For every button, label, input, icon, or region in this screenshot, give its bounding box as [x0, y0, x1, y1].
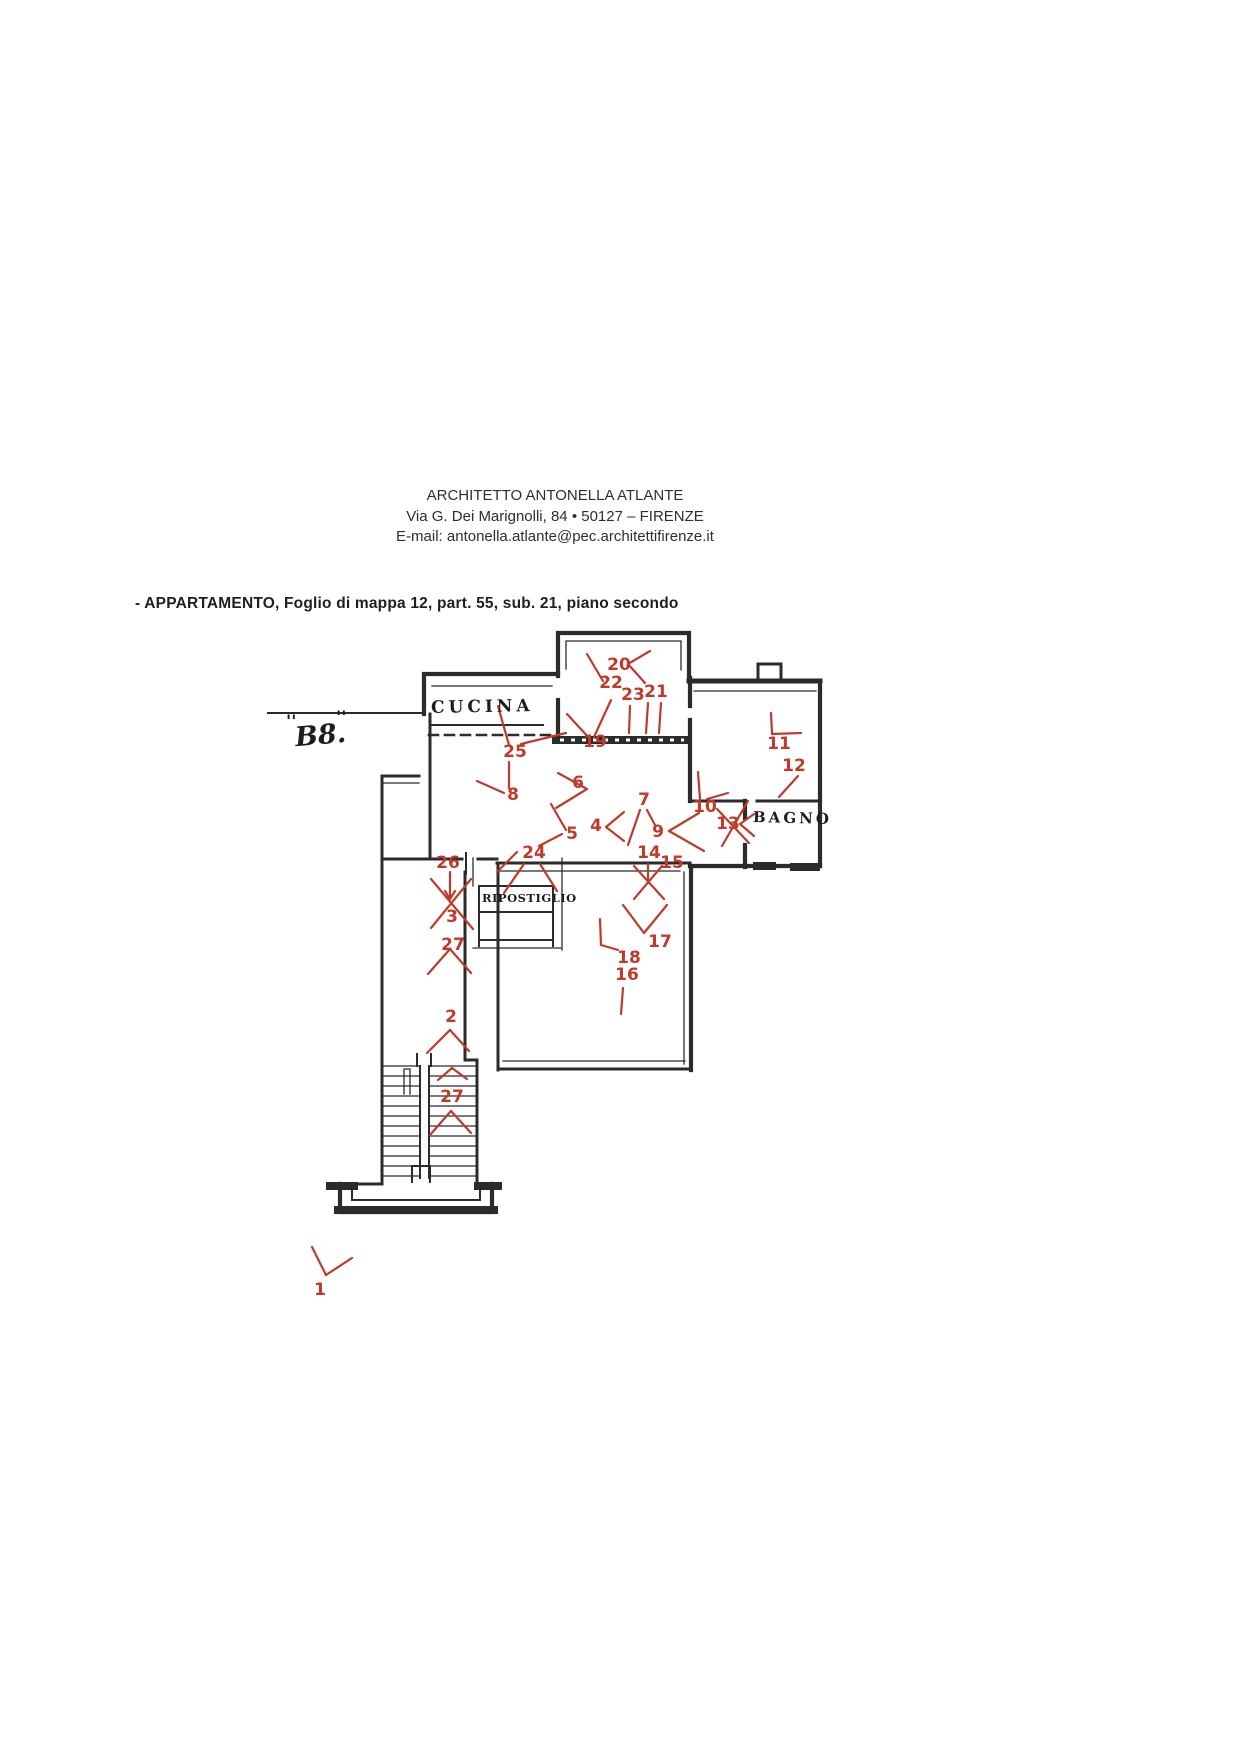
photo-marker-number: 13: [716, 814, 740, 834]
photo-marker-number: 7: [638, 790, 650, 810]
photo-marker-number: 27: [441, 935, 465, 955]
photo-markers-layer: 1232726242586547910131415161718192022232…: [312, 651, 806, 1300]
marker-arrow-line: [606, 812, 624, 827]
photo-marker-number: 1: [314, 1280, 326, 1300]
walls-layer: [268, 633, 820, 1212]
photo-marker-number: 21: [644, 682, 668, 702]
photo-marker-number: 5: [566, 824, 578, 844]
photo-marker-number: 9: [652, 822, 664, 842]
marker-arrow-line: [628, 810, 640, 845]
photo-marker-number: 20: [607, 655, 631, 675]
marker-arrow-line: [623, 905, 644, 933]
marker-arrow-line: [621, 988, 623, 1014]
photo-marker-number: 24: [522, 843, 546, 863]
marker-arrow-line: [698, 772, 700, 799]
marker-arrow-line: [504, 864, 524, 893]
photo-marker-number: 14: [637, 843, 661, 863]
marker-arrow-line: [771, 713, 772, 733]
marker-arrow-line: [427, 1030, 450, 1053]
marker-arrow-line: [438, 1068, 452, 1080]
photo-marker-number: 2: [445, 1007, 457, 1027]
marker-arrow-line: [629, 706, 630, 733]
room-label-ripostiglio: RIPOSTIGLIO: [482, 891, 577, 905]
marker-arrow-line: [601, 945, 618, 950]
marker-arrow-line: [628, 651, 650, 664]
marker-arrow-line: [312, 1247, 326, 1275]
photo-marker-number: 25: [503, 742, 527, 762]
photo-marker-number: 17: [648, 932, 672, 952]
photo-marker-number: 16: [615, 965, 639, 985]
marker-arrow-line: [659, 703, 661, 733]
photo-marker-number: 4: [590, 816, 602, 836]
marker-arrow-line: [644, 905, 667, 933]
photo-marker-number: 12: [782, 756, 806, 776]
scanned-document-page: ARCHITETTO ANTONELLA ATLANTE Via G. Dei …: [0, 0, 1241, 1756]
marker-arrow-line: [600, 919, 601, 945]
photo-marker-number: 26: [436, 853, 460, 873]
marker-arrow-line: [779, 776, 798, 797]
marker-arrow-line: [430, 1111, 451, 1135]
marker-arrow-line: [326, 1258, 352, 1275]
floor-plan-drawing: 1232726242586547910131415161718192022232…: [0, 0, 1241, 1756]
photo-marker-number: 8: [507, 785, 519, 805]
room-label-cucina: CUCINA: [431, 696, 534, 718]
marker-arrow-line: [452, 1068, 467, 1079]
photo-marker-number: 22: [599, 673, 623, 693]
floor-plan: 1232726242586547910131415161718192022232…: [0, 0, 1241, 1756]
photo-marker-number: 18: [617, 948, 641, 968]
photo-marker-number: 19: [583, 732, 607, 752]
marker-arrow-line: [477, 781, 504, 793]
b8-tick-right: '': [336, 708, 346, 728]
photo-marker-number: 15: [660, 853, 684, 873]
marker-arrow-line: [451, 1111, 471, 1133]
marker-arrow-line: [646, 703, 648, 733]
marker-arrow-line: [606, 827, 624, 841]
photo-marker-number: 10: [693, 797, 717, 817]
photo-marker-number: 11: [767, 734, 791, 754]
photo-marker-number: 3: [446, 907, 458, 927]
photo-marker-number: 23: [621, 685, 645, 705]
photo-marker-number: 6: [572, 773, 584, 793]
marker-arrow-line: [669, 831, 704, 851]
room-label-bagno: BAGNO: [753, 808, 832, 828]
marker-arrow-line: [539, 834, 562, 846]
marker-arrow-line: [551, 804, 566, 830]
photo-marker-number: 27: [440, 1087, 464, 1107]
